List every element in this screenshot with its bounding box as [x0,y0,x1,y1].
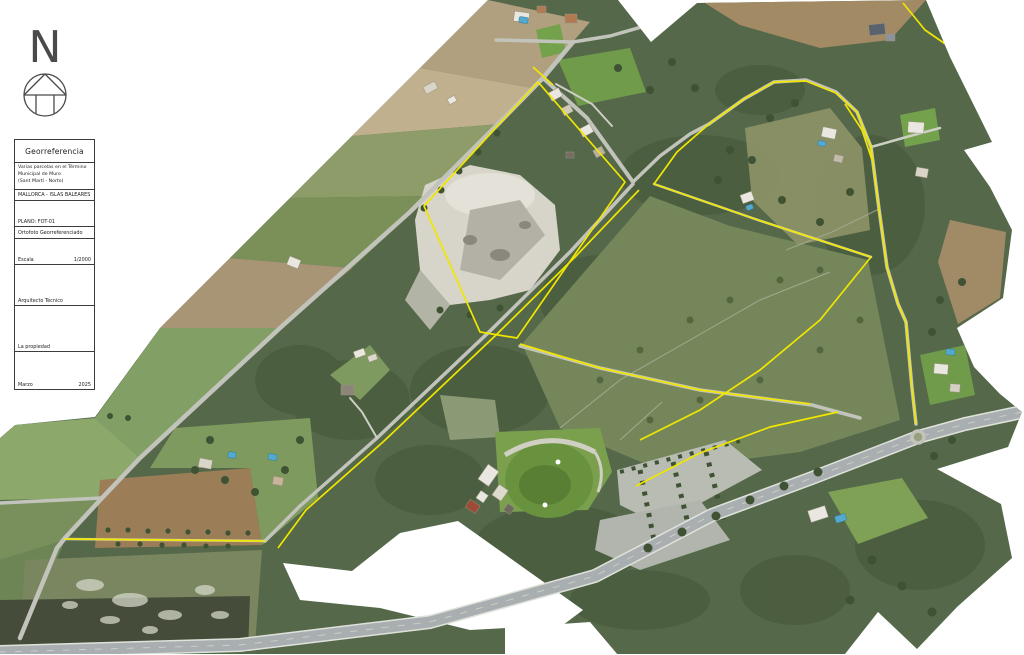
project-line-1: Varias parcelas en el Término [18,164,91,171]
scale-label: Escala [18,257,34,263]
plan-sheet: N Georreferencia Varias parcelas en el T… [0,0,1024,655]
north-label: N [29,22,62,73]
owner-row: La propiedad [15,306,94,352]
title-block: Georreferencia Varias parcelas en el Tér… [14,139,95,390]
date-row: Marzo 2025 [15,352,94,389]
scale-row: Escala 1/2000 [15,239,94,265]
date-month: Marzo [18,382,33,388]
project-description: Varias parcelas en el Término Municipal … [15,163,94,190]
pool [519,16,529,23]
north-arrow-icon: N [18,22,78,124]
scale-value: 1/2000 [74,257,91,263]
pool [946,349,955,356]
project-line-2: Municipal de Muro [18,171,91,178]
orthophoto-map [0,0,1024,655]
roundabout [912,431,924,443]
project-location: MALLORCA - ISLAS BALEARES [15,190,94,201]
date-year: 2025 [79,382,91,388]
pool [228,451,237,458]
project-line-3: (Sant Martí - Norte) [18,178,91,185]
plan-number: PLANO: FOT-01 [15,201,94,227]
pool [268,453,278,460]
title-block-title: Georreferencia [15,140,94,163]
drawing-type: Ortofoto Georreferenciado [15,227,94,239]
architect-row: Arquitecto Técnico [15,265,94,306]
